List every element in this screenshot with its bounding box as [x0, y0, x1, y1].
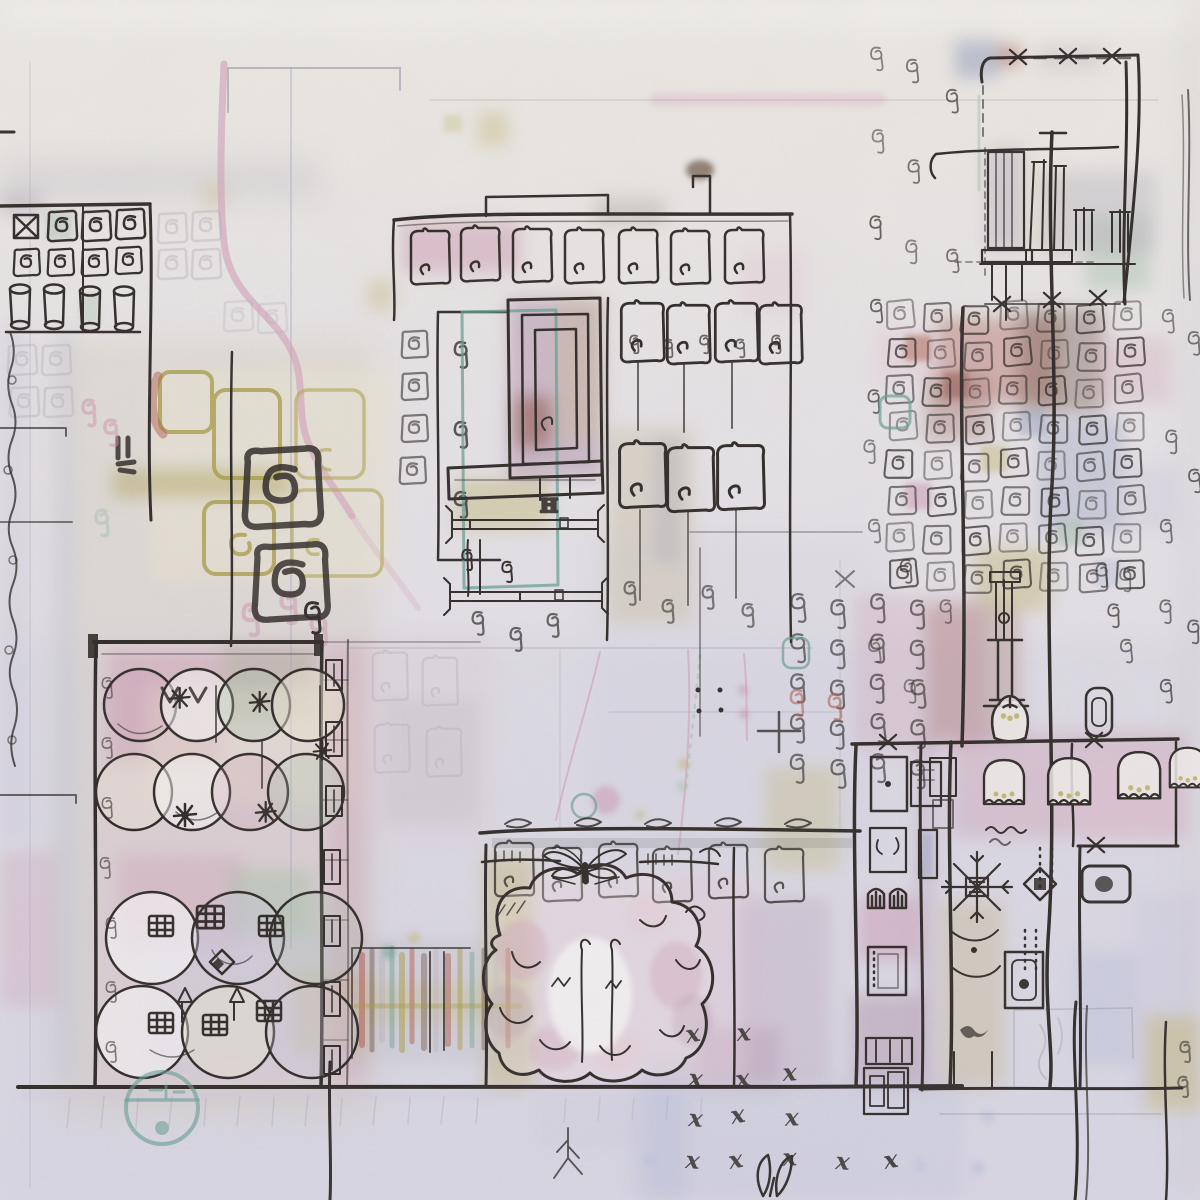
paper-grain [0, 0, 1200, 1200]
artwork: H [0, 0, 1200, 1200]
artwork-canvas: H [0, 0, 1200, 1200]
